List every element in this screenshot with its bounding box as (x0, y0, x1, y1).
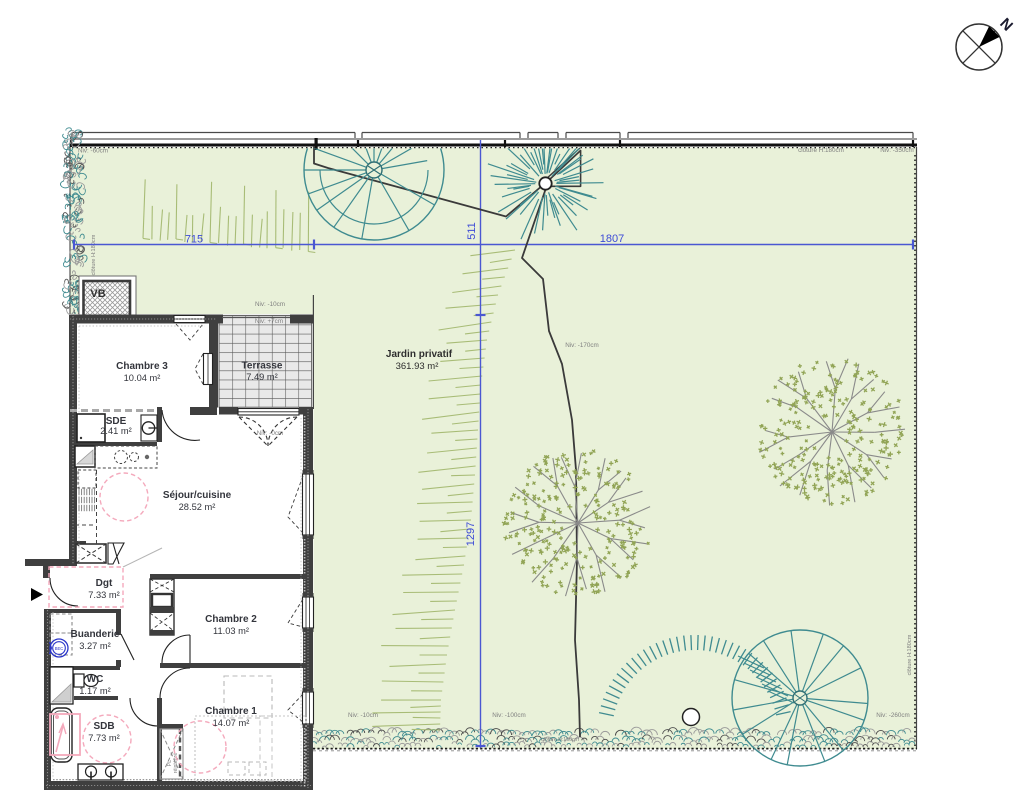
svg-text:Chambre 3: Chambre 3 (116, 361, 168, 372)
svg-text:Chambre 1: Chambre 1 (205, 706, 257, 717)
svg-text:1.17 m²: 1.17 m² (79, 686, 111, 696)
svg-text:Niv: -100cm: Niv: -100cm (492, 712, 526, 719)
svg-text:Niv: -350cm: Niv: -350cm (880, 147, 914, 154)
svg-text:361.93 m²: 361.93 m² (396, 361, 439, 372)
svg-text:BEC: BEC (55, 646, 64, 651)
svg-text:Niv: -10cm: Niv: -10cm (348, 712, 378, 719)
svg-text:10.04 m²: 10.04 m² (124, 373, 161, 383)
svg-text:2.41 m²: 2.41 m² (100, 426, 132, 436)
svg-text:clôture H:180cm: clôture H:180cm (907, 634, 913, 675)
svg-text:VB: VB (90, 288, 105, 300)
svg-text:Dgt: Dgt (96, 578, 113, 589)
svg-text:Terrasse: Terrasse (242, 361, 283, 372)
svg-text:1297: 1297 (465, 522, 477, 546)
svg-text:clôture H:180cm: clôture H:180cm (91, 234, 97, 275)
svg-text:Niv: -10cm: Niv: -10cm (255, 301, 285, 308)
svg-text:14.07 m²: 14.07 m² (213, 718, 250, 728)
svg-text:réintégré: réintégré (173, 753, 179, 774)
svg-text:clôture H:180cm: clôture H:180cm (798, 147, 844, 154)
svg-text:511: 511 (466, 222, 478, 240)
svg-text:clôture H:150cm: clôture H:150cm (541, 737, 579, 743)
svg-text:11.03 m²: 11.03 m² (213, 626, 249, 636)
svg-text:7.33 m²: 7.33 m² (88, 590, 120, 600)
svg-text:WC: WC (87, 674, 104, 685)
svg-text:Niv: -170cm: Niv: -170cm (565, 342, 599, 349)
svg-text:Buanderie: Buanderie (71, 629, 120, 640)
svg-text:Niv: +7cm: Niv: +7cm (255, 318, 283, 325)
svg-text:7.73 m²: 7.73 m² (88, 733, 120, 743)
svg-text:3.27 m²: 3.27 m² (79, 641, 111, 651)
svg-text:Chambre 2: Chambre 2 (205, 614, 257, 625)
svg-text:7.49 m²: 7.49 m² (246, 372, 278, 382)
svg-text:715: 715 (185, 234, 203, 246)
svg-text:Jardin privatif: Jardin privatif (386, 349, 453, 360)
svg-text:Niv: -60cm: Niv: -60cm (78, 148, 108, 155)
svg-text:Niv: -260cm: Niv: -260cm (876, 712, 910, 719)
svg-text:Séjour/cuisine: Séjour/cuisine (163, 490, 232, 501)
svg-text:28.52 m²: 28.52 m² (179, 502, 216, 512)
svg-text:1807: 1807 (600, 233, 624, 245)
svg-text:Niv: -0cm: Niv: -0cm (257, 430, 284, 437)
svg-text:SDB: SDB (93, 721, 114, 732)
